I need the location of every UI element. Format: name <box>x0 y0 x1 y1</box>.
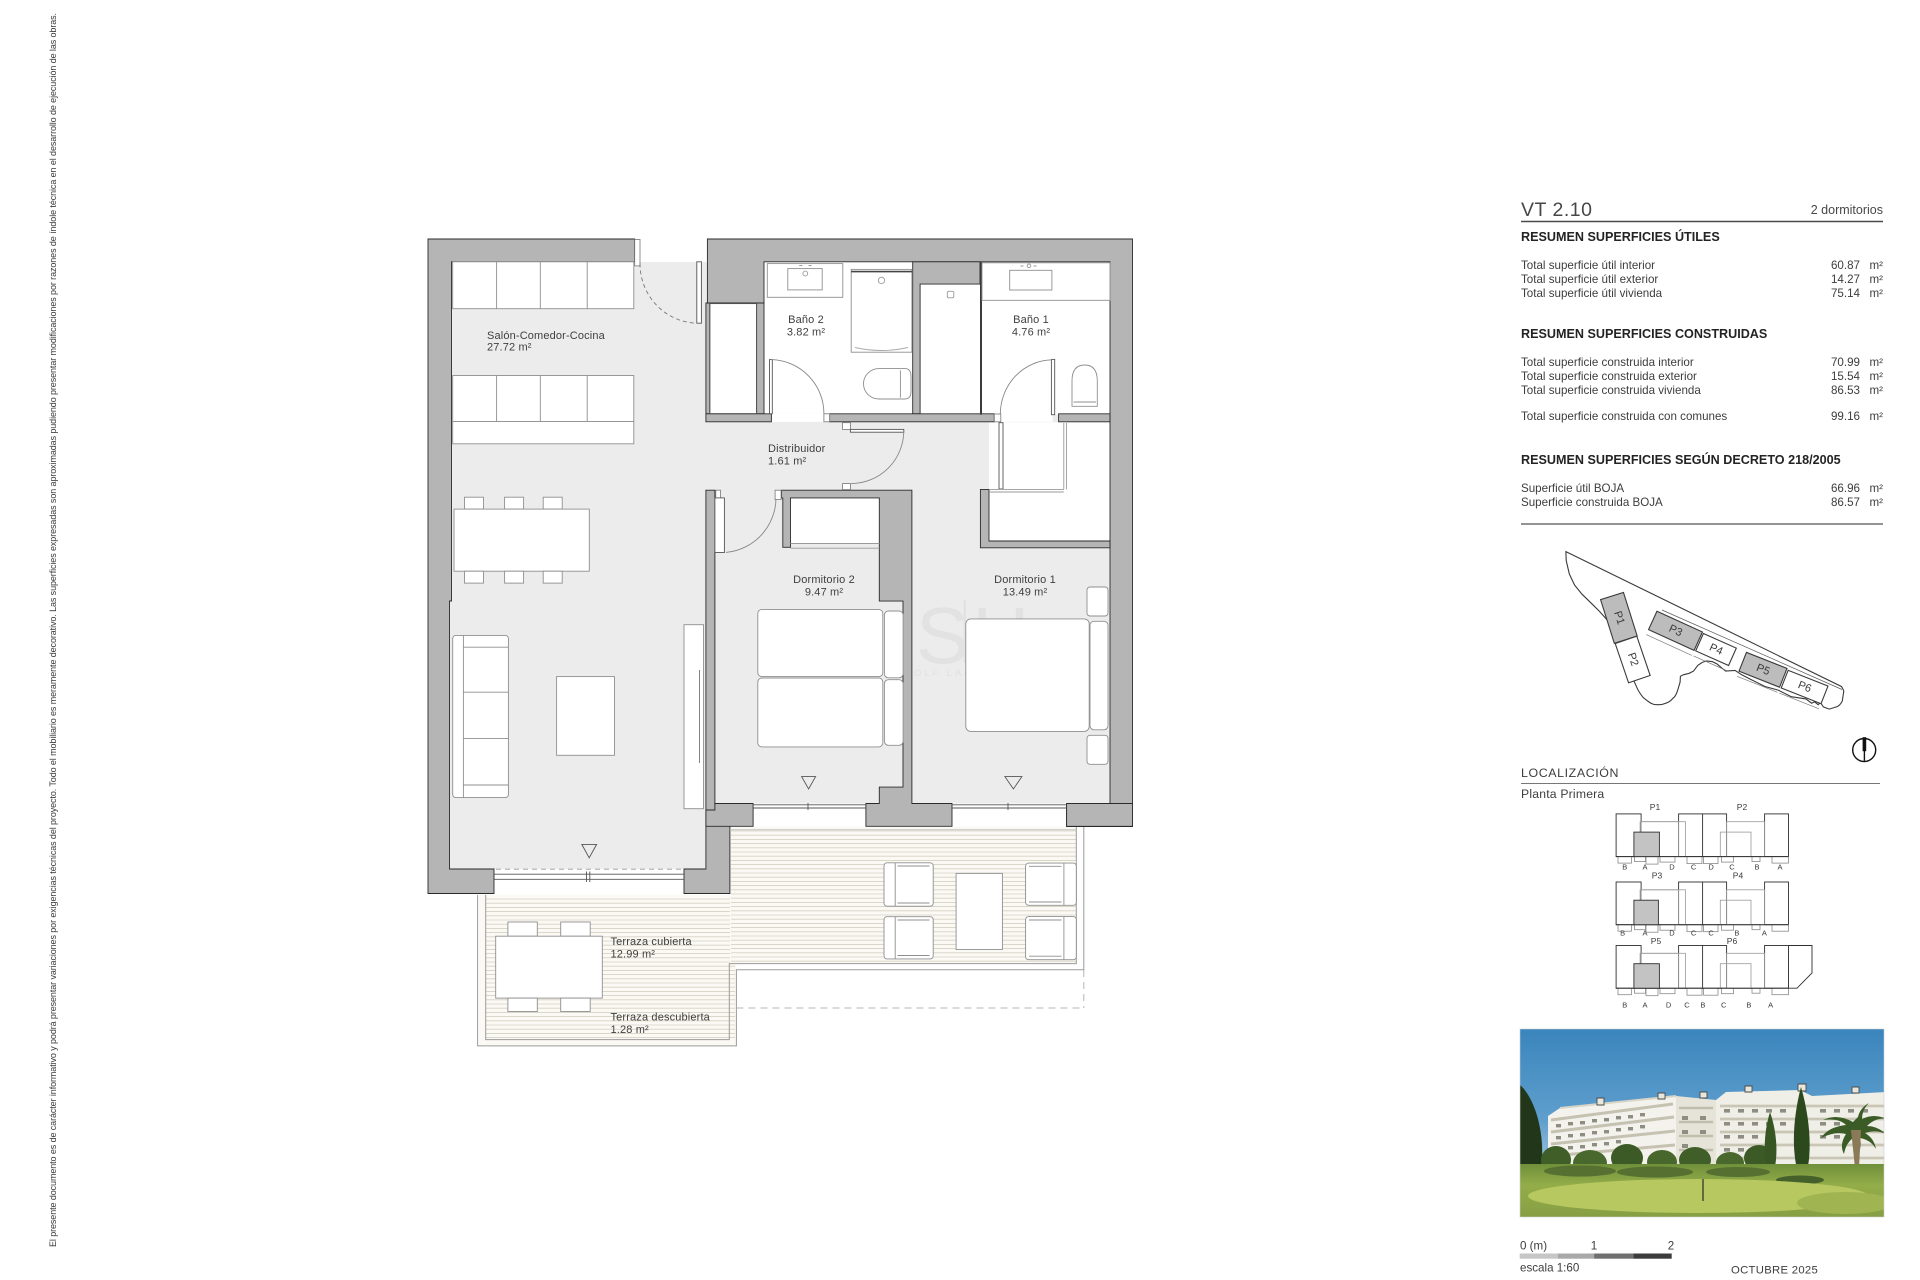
svg-text:C: C <box>1691 863 1697 872</box>
svg-text:Dormitorio 1: Dormitorio 1 <box>994 574 1056 586</box>
svg-text:Baño 1: Baño 1 <box>1013 314 1049 326</box>
svg-text:Total superficie construida co: Total superficie construida con comunes <box>1521 410 1727 423</box>
svg-text:C: C <box>1708 929 1714 938</box>
svg-text:B: B <box>1700 1001 1705 1010</box>
svg-text:1: 1 <box>1591 1240 1597 1253</box>
svg-text:0 (m): 0 (m) <box>1520 1240 1547 1253</box>
svg-text:12.99 m²: 12.99 m² <box>611 949 656 961</box>
svg-text:B: B <box>1746 1001 1751 1010</box>
svg-text:A: A <box>1642 863 1647 872</box>
svg-text:VT 2.10: VT 2.10 <box>1521 199 1592 221</box>
svg-text:Dormitorio 2: Dormitorio 2 <box>793 574 855 586</box>
svg-text:P6: P6 <box>1727 936 1738 946</box>
svg-text:P4: P4 <box>1733 871 1744 881</box>
svg-text:LOCALIZACIÓN: LOCALIZACIÓN <box>1521 765 1619 780</box>
svg-text:75.14: 75.14 <box>1831 287 1861 300</box>
svg-text:Planta Primera: Planta Primera <box>1521 787 1604 801</box>
svg-text:4.76 m²: 4.76 m² <box>1012 327 1051 339</box>
svg-text:B: B <box>1754 863 1759 872</box>
svg-text:m²: m² <box>1869 410 1883 423</box>
svg-text:Total superficie construida in: Total superficie construida interior <box>1521 356 1694 369</box>
svg-text:P1: P1 <box>1650 802 1661 812</box>
svg-text:m²: m² <box>1869 482 1883 495</box>
svg-text:9.47 m²: 9.47 m² <box>805 587 844 599</box>
svg-text:m²: m² <box>1869 273 1883 286</box>
svg-text:P3: P3 <box>1652 871 1663 881</box>
svg-text:RESUMEN SUPERFICIES SEGÚN DECR: RESUMEN SUPERFICIES SEGÚN DECRETO 218/20… <box>1521 452 1841 467</box>
svg-text:A: A <box>1768 1001 1773 1010</box>
svg-text:Superficie construida BOJA: Superficie construida BOJA <box>1521 496 1663 509</box>
svg-text:Superficie útil BOJA: Superficie útil BOJA <box>1521 482 1624 495</box>
svg-text:S: S <box>916 591 969 680</box>
svg-text:70.99: 70.99 <box>1831 356 1860 369</box>
svg-text:D: D <box>1669 863 1675 872</box>
svg-text:Total superficie útil vivienda: Total superficie útil vivienda <box>1521 287 1663 300</box>
svg-text:m²: m² <box>1869 356 1883 369</box>
svg-text:A: A <box>1642 929 1647 938</box>
svg-text:A: A <box>1777 863 1782 872</box>
svg-text:P5: P5 <box>1651 936 1662 946</box>
svg-text:66.96: 66.96 <box>1831 482 1860 495</box>
svg-text:Terraza descubierta: Terraza descubierta <box>611 1012 711 1024</box>
svg-text:escala 1:60: escala 1:60 <box>1520 1262 1579 1275</box>
svg-text:P2: P2 <box>1737 802 1748 812</box>
svg-text:OCTUBRE 2025: OCTUBRE 2025 <box>1731 1265 1818 1277</box>
svg-text:2 dormitorios: 2 dormitorios <box>1811 203 1883 217</box>
svg-text:3.82 m²: 3.82 m² <box>787 327 826 339</box>
svg-text:D: D <box>1669 929 1675 938</box>
svg-text:Total superficie útil exterior: Total superficie útil exterior <box>1521 273 1658 286</box>
svg-text:m²: m² <box>1869 287 1883 300</box>
svg-text:27.72 m²: 27.72 m² <box>487 342 532 354</box>
svg-text:15.54: 15.54 <box>1831 370 1861 383</box>
svg-text:2: 2 <box>1668 1240 1674 1253</box>
svg-text:RESUMEN SUPERFICIES ÚTILES: RESUMEN SUPERFICIES ÚTILES <box>1521 229 1720 244</box>
svg-text:B: B <box>1620 929 1625 938</box>
svg-text:RESUMEN SUPERFICIES CONSTRUIDA: RESUMEN SUPERFICIES CONSTRUIDAS <box>1521 327 1767 341</box>
svg-text:99.16: 99.16 <box>1831 410 1860 423</box>
svg-text:60.87: 60.87 <box>1831 259 1860 272</box>
svg-text:Total superficie construida ex: Total superficie construida exterior <box>1521 370 1697 383</box>
svg-text:Baño 2: Baño 2 <box>788 314 824 326</box>
svg-text:C: C <box>1721 1001 1727 1010</box>
svg-text:1.28 m²: 1.28 m² <box>611 1024 650 1036</box>
svg-text:m²: m² <box>1869 496 1883 509</box>
svg-text:m²: m² <box>1869 259 1883 272</box>
svg-text:m²: m² <box>1869 370 1883 383</box>
svg-text:Salón-Comedor-Cocina: Salón-Comedor-Cocina <box>487 330 606 342</box>
svg-text:13.49 m²: 13.49 m² <box>1003 587 1048 599</box>
svg-text:Total superficie construida vi: Total superficie construida vivienda <box>1521 384 1701 397</box>
svg-text:C: C <box>1691 929 1697 938</box>
svg-text:86.57: 86.57 <box>1831 496 1860 509</box>
svg-text:m²: m² <box>1869 384 1883 397</box>
svg-text:A: A <box>1642 1001 1647 1010</box>
svg-text:B: B <box>1622 863 1627 872</box>
svg-text:C: C <box>1684 1001 1690 1010</box>
svg-text:Terraza cubierta: Terraza cubierta <box>611 936 693 948</box>
svg-text:B: B <box>1622 1001 1627 1010</box>
svg-text:Distribuidor: Distribuidor <box>768 443 826 455</box>
svg-text:1.61 m²: 1.61 m² <box>768 456 807 468</box>
svg-text:14.27: 14.27 <box>1831 273 1860 286</box>
svg-text:86.53: 86.53 <box>1831 384 1860 397</box>
svg-text:Total superficie útil interior: Total superficie útil interior <box>1521 259 1655 272</box>
svg-text:El presente documento es de ca: El presente documento es de carácter inf… <box>48 13 58 1247</box>
svg-text:A: A <box>1762 929 1767 938</box>
svg-text:D: D <box>1666 1001 1672 1010</box>
svg-text:D: D <box>1708 863 1714 872</box>
